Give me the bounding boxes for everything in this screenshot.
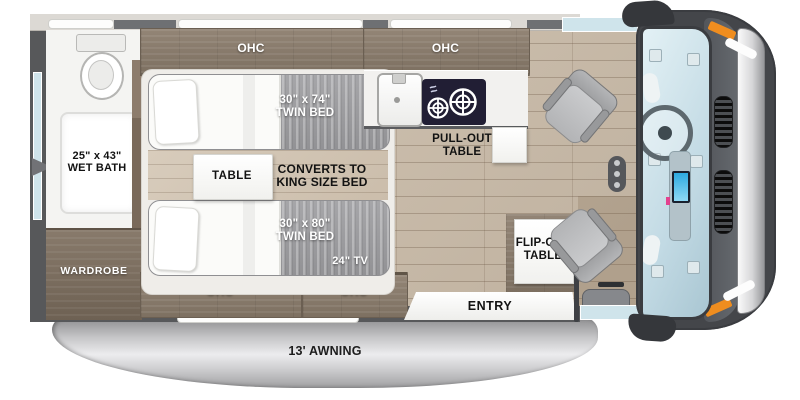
- headrest-through-glass: [641, 234, 662, 266]
- bed-a-label: 30" x 74" TWIN BED: [245, 94, 365, 120]
- cupholder-icon: [614, 182, 620, 188]
- toilet-icon: [76, 34, 126, 52]
- wet-bath-name: WET BATH: [68, 162, 127, 174]
- sink-drain-icon: [394, 97, 400, 103]
- bed-b-size: 30" x 80": [279, 218, 330, 230]
- rv-floorplan: 13' AWNING 25" x 43" WET BATH WARDROBE O…: [0, 0, 800, 400]
- table-label: TABLE: [193, 170, 271, 183]
- bed-b-name: TWIN BED: [276, 231, 334, 243]
- cooktop-icon: [422, 79, 486, 125]
- headrest-through-glass: [641, 72, 662, 104]
- bed-a-name: TWIN BED: [276, 107, 334, 119]
- top-wall-segment: [527, 20, 562, 29]
- toilet-icon: [88, 60, 114, 90]
- converts-label: CONVERTS TO KING SIZE BED: [262, 163, 382, 190]
- center-console: [608, 156, 626, 192]
- grille-vent: [714, 170, 733, 234]
- bed-a-size: 30" x 74": [279, 94, 330, 106]
- sink-faucet-icon: [392, 73, 406, 84]
- dash-vent-icon: [651, 265, 664, 278]
- bed-b-label: 30" x 80" TWIN BED: [245, 218, 365, 244]
- pillow: [152, 206, 199, 272]
- side-mirror-top-icon: [621, 0, 675, 28]
- wardrobe-label: WARDROBE: [46, 266, 142, 278]
- steering-hub: [658, 126, 672, 140]
- window-sill: [48, 19, 114, 29]
- cupholder-icon: [614, 171, 620, 177]
- door-speaker: [598, 282, 624, 287]
- ohc-label: OHC: [140, 42, 362, 55]
- entry-label: ENTRY: [404, 299, 576, 313]
- awning-label: 13' AWNING: [52, 344, 598, 358]
- tv-label: 24" TV: [278, 255, 368, 267]
- grille-vent: [714, 96, 733, 148]
- pullout-table-label: PULL-OUT TABLE: [424, 133, 500, 159]
- wet-bath-label: 25" x 43" WET BATH: [50, 150, 144, 175]
- dash-indicator: [666, 197, 670, 205]
- dash-vent-icon: [687, 261, 700, 274]
- pullout-line2: TABLE: [443, 146, 481, 158]
- side-mirror-bottom-icon: [627, 313, 677, 342]
- converts-line1: CONVERTS TO: [278, 162, 367, 176]
- pullout-line1: PULL-OUT: [432, 133, 492, 145]
- pillow: [152, 79, 199, 145]
- rear-window: [33, 72, 42, 220]
- front-bumper-chrome: [737, 28, 765, 314]
- ohc-label: OHC: [363, 42, 528, 55]
- windshield: [640, 26, 712, 320]
- dash-vent-icon: [687, 53, 700, 66]
- dash-vent-icon: [690, 155, 703, 168]
- converts-line2: KING SIZE BED: [276, 175, 367, 189]
- dash-vent-icon: [649, 49, 662, 62]
- infotainment-screen: [672, 171, 690, 203]
- wet-bath-size: 25" x 43": [73, 150, 122, 162]
- cupholder-icon: [614, 160, 620, 166]
